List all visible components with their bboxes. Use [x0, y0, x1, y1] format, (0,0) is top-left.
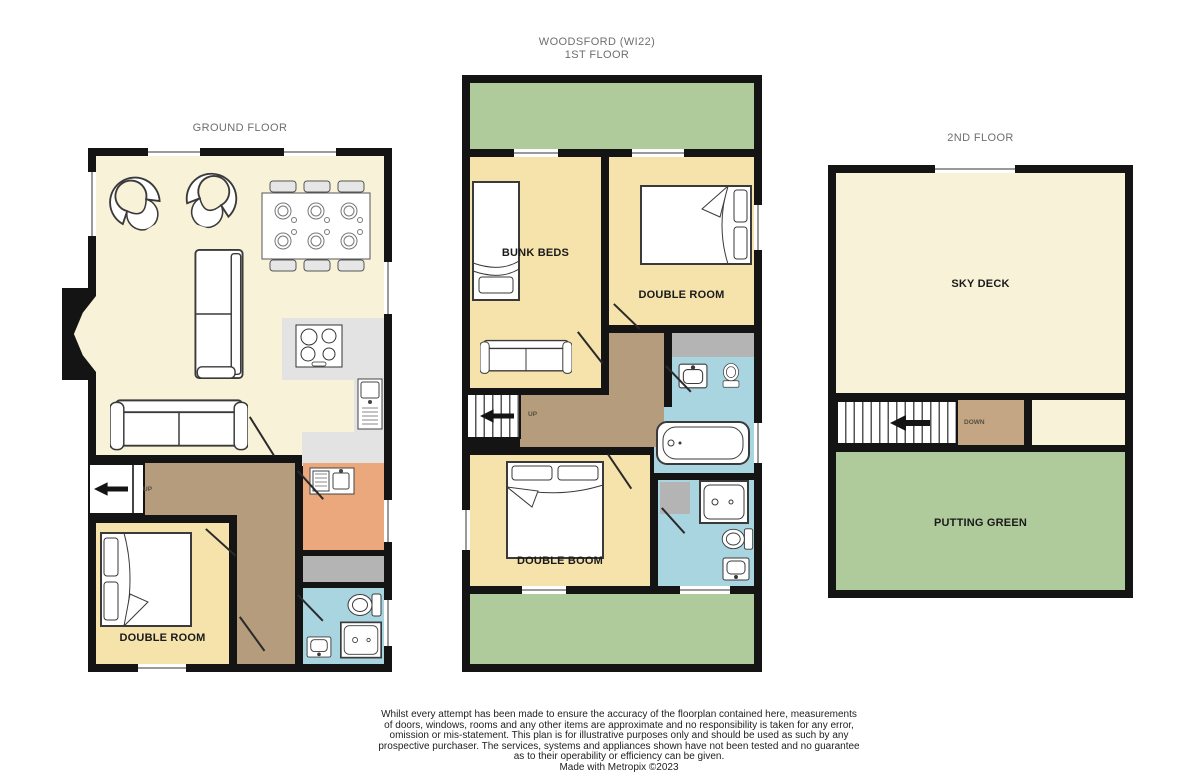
window [384, 500, 392, 542]
toilet [346, 592, 382, 618]
stairs-up-arrow-icon [94, 481, 128, 497]
hallway-lower [237, 463, 295, 664]
bottom-deck [470, 594, 754, 664]
shower [340, 618, 382, 662]
disclaimer-line: Made with Metropix ©2023 [319, 763, 919, 774]
window [522, 586, 566, 594]
sky-deck-label: SKY DECK [836, 278, 1125, 290]
window [88, 172, 96, 236]
double-bed [506, 461, 604, 559]
disclaimer-line: Whilst every attempt has been made to en… [319, 710, 919, 721]
ground-floor-plan: UP [88, 148, 392, 672]
window [384, 262, 392, 314]
top-deck [470, 83, 754, 149]
toilet [715, 362, 747, 388]
ground-floor-caption: GROUND FLOOR [88, 122, 392, 134]
window [284, 148, 336, 156]
window [935, 165, 1015, 173]
stairs-down-arrow-icon [890, 415, 930, 431]
first-stairs-direction: UP [528, 411, 537, 418]
sofa-vertical [192, 248, 246, 380]
kitchen-sink [357, 378, 383, 430]
ground-stairs-direction: UP [143, 486, 152, 493]
toilet [720, 527, 754, 551]
page-title: WOODSFORD (WI22) 1ST FLOOR [397, 36, 797, 62]
bunk-beds-label: BUNK BEDS [470, 247, 601, 259]
kitchen-counter-bottom [302, 432, 384, 466]
shower [698, 480, 750, 524]
window [754, 205, 762, 250]
first-storage [672, 333, 754, 357]
hallway-upper [145, 463, 237, 515]
hand-basin [722, 557, 750, 581]
window [384, 600, 392, 646]
double-bed [100, 532, 192, 627]
floorplan-canvas: WOODSFORD (WI22) 1ST FLOOR GROUND FLOOR … [0, 0, 1200, 774]
window [514, 149, 558, 157]
title-line1: WOODSFORD (WI22) [397, 36, 797, 49]
double-boom-label: DOUBLE BOOM [470, 555, 650, 567]
first-double-room-label: DOUBLE ROOM [609, 289, 754, 301]
window [138, 664, 186, 672]
ground-double-room-label: DOUBLE ROOM [96, 632, 229, 644]
second-floor-plan: DOWN SKY DECK PUTTING GREEN [828, 165, 1133, 598]
window [754, 423, 762, 463]
window [462, 510, 470, 550]
sky-deck-extension [1032, 400, 1125, 445]
stairs-up-arrow-icon [480, 408, 514, 424]
landing-lower [520, 395, 609, 447]
sofa-horizontal [110, 398, 248, 452]
double-bed [640, 185, 752, 265]
window [148, 148, 200, 156]
disclaimer: Whilst every attempt has been made to en… [319, 710, 919, 774]
hob [295, 324, 343, 368]
hand-basin [306, 636, 332, 658]
bathtub [656, 421, 750, 465]
storage-room [303, 556, 384, 582]
dining-table-set [260, 180, 372, 272]
hand-basin [678, 363, 708, 389]
second-stairs-direction: DOWN [964, 419, 985, 426]
title-line2: 1ST FLOOR [397, 49, 797, 62]
sofa [480, 335, 572, 379]
first-floor-plan: UP [462, 75, 762, 672]
window [680, 586, 730, 594]
stairs-divider [132, 465, 134, 513]
window [632, 149, 684, 157]
putting-green-label: PUTTING GREEN [836, 517, 1125, 529]
single-bed [472, 181, 520, 301]
second-floor-caption: 2ND FLOOR [828, 132, 1133, 144]
